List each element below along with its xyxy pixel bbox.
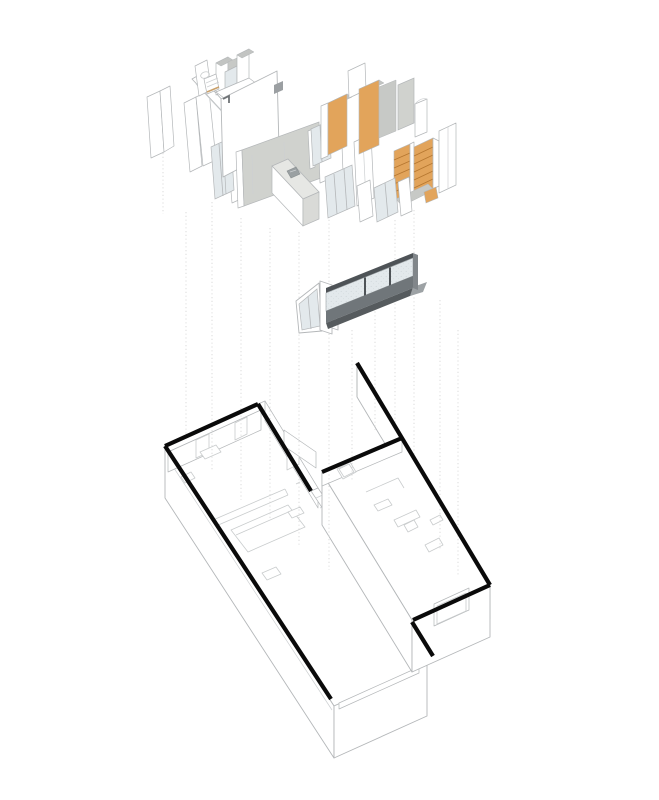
timber-panel	[328, 94, 347, 155]
window-band-layer	[296, 253, 427, 334]
concrete-slab	[379, 80, 396, 138]
concrete-slab	[398, 78, 414, 130]
interior-fitout-layer	[147, 49, 456, 226]
shelf-divider	[410, 142, 414, 198]
white-closet	[439, 123, 456, 193]
door-leaf	[357, 180, 373, 222]
diagram-canvas	[0, 0, 659, 800]
window-end-post	[413, 253, 418, 290]
timber-panel	[359, 80, 379, 154]
exploded-axonometric-diagram	[0, 0, 659, 800]
glass-pane	[374, 178, 398, 222]
slab-edge	[321, 103, 328, 159]
shelf-divider	[433, 138, 439, 189]
arched-panel	[415, 99, 427, 137]
